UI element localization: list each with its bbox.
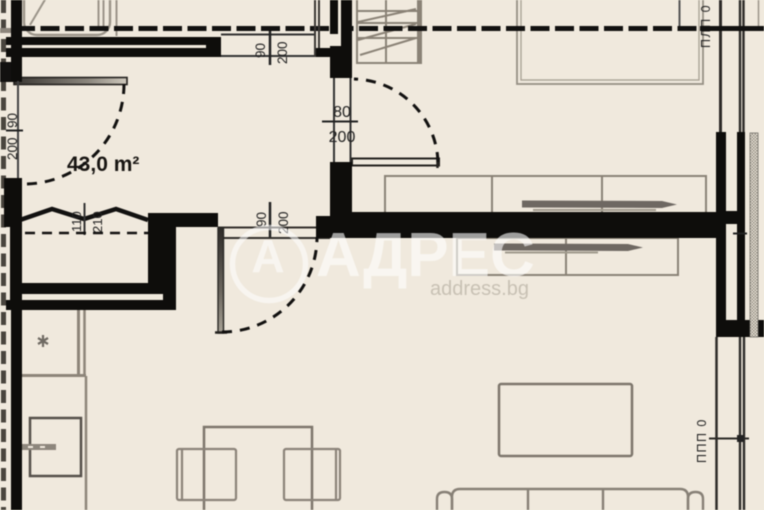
svg-text:200: 200 [275, 41, 290, 64]
svg-text:90: 90 [253, 43, 268, 58]
svg-text:43,0 m²: 43,0 m² [67, 153, 139, 176]
svg-text:90: 90 [254, 212, 269, 227]
svg-text:А: А [251, 230, 284, 282]
svg-text:address.bg: address.bg [430, 278, 529, 300]
svg-text:200: 200 [5, 137, 20, 160]
svg-text:210: 210 [90, 211, 105, 233]
svg-text:ПЛП 0: ПЛП 0 [699, 4, 713, 48]
svg-text:90: 90 [5, 113, 20, 128]
svg-text:200: 200 [329, 129, 356, 146]
svg-text:110: 110 [69, 211, 84, 232]
svg-text:ППП 0: ППП 0 [695, 418, 709, 463]
svg-text:80: 80 [333, 104, 351, 121]
